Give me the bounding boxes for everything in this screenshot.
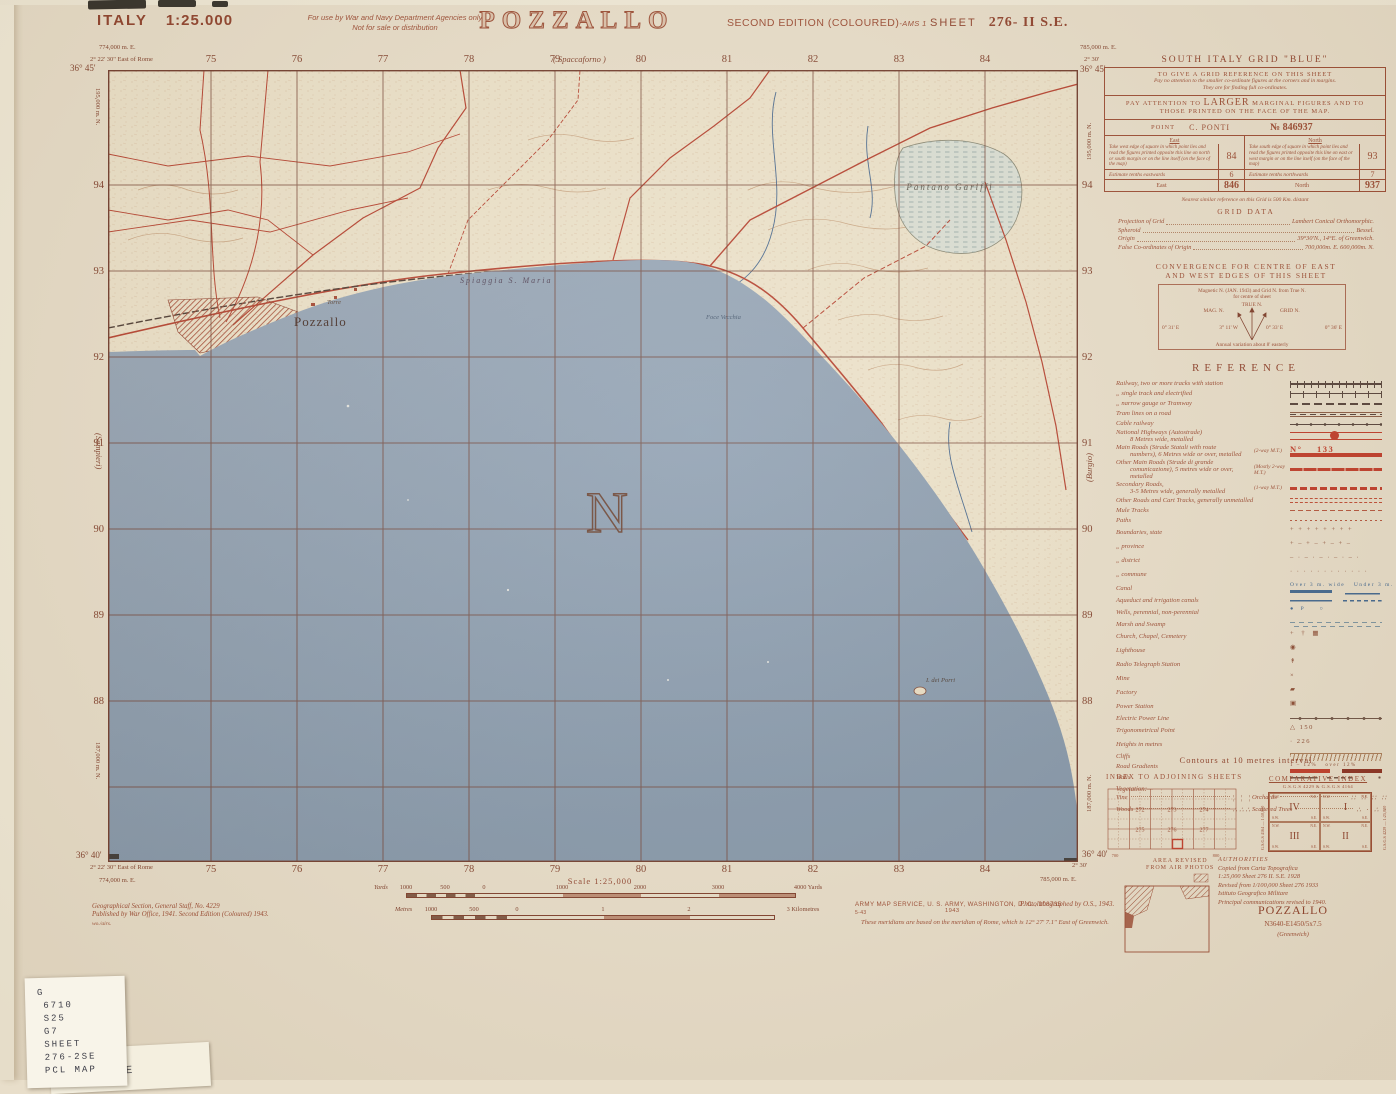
legend-label: Paths bbox=[1116, 517, 1131, 524]
legend-row: Mine × bbox=[1116, 672, 1388, 686]
corner-easting-tl: 774,000 m. E. bbox=[99, 44, 136, 51]
authorities-title: AUTHORITIES bbox=[1218, 856, 1388, 865]
legend-symbol-text: Over 3 m. wide Under 3 m. bbox=[1290, 582, 1388, 589]
corner-easting-br: 785,000 m. E. bbox=[1040, 876, 1077, 883]
legend-symbol bbox=[1290, 498, 1388, 503]
sheet-title-art: POZZALLO bbox=[447, 2, 707, 38]
legend-symbol-text: · 226 bbox=[1290, 738, 1388, 745]
legend-label: Mine bbox=[1116, 675, 1130, 682]
grid-easting-label: 82 bbox=[770, 54, 856, 65]
legend-label: Main Roads (Strade Statali with route bbox=[1116, 444, 1216, 451]
comparative-side-left: G.S.G.S 4164 — 1:50,000 bbox=[1260, 806, 1265, 850]
scan-artifact bbox=[158, 0, 196, 7]
legend-symbol bbox=[1290, 715, 1388, 722]
north-instruction: Take south edge of square in which point… bbox=[1245, 144, 1359, 169]
legend-note: (Mostly 2-way M.T.) bbox=[1254, 464, 1290, 476]
north-column: North Take south edge of square in which… bbox=[1245, 136, 1385, 191]
edition-label: SECOND EDITION (COLOURED) bbox=[727, 17, 899, 29]
legend-symbol bbox=[1290, 517, 1388, 524]
grid-ref-larger: LARGER bbox=[1204, 97, 1250, 108]
legend-row: Railway, two or more tracks with station bbox=[1116, 379, 1388, 389]
north-letter: N bbox=[586, 480, 628, 545]
quadrant-ne-label: N.E. bbox=[1310, 824, 1317, 828]
map-face: Pozzallo Torre Spiaggia S. Maria Pantano… bbox=[108, 70, 1078, 862]
metres-tick: 0 bbox=[515, 906, 518, 913]
legend-row: „ narrow gauge or Tramway bbox=[1116, 399, 1388, 409]
quadrant-nw-label: N.W. bbox=[1323, 795, 1330, 799]
legend-symbol-text: + – + – + – + – bbox=[1290, 540, 1388, 547]
legend-row: Mule Tracks bbox=[1116, 506, 1388, 516]
legend-row: Cable railway bbox=[1116, 419, 1388, 429]
legend-symbol: – · – · – · – · – · bbox=[1290, 554, 1388, 568]
east-total-value: 846 bbox=[1218, 179, 1244, 191]
adjoining-sheet-number: 275 bbox=[1136, 828, 1145, 834]
legend-symbol: · 226 bbox=[1290, 738, 1388, 752]
leader-dots bbox=[1143, 227, 1355, 234]
north-estimate-label: Estimate tenths northwards bbox=[1245, 169, 1359, 179]
grid-easting-label: 83 bbox=[856, 864, 942, 875]
annual-variation-note: Annual variation about 8' easterly bbox=[1216, 342, 1289, 348]
library-label: G6710S25G7SHEET276-2SEPCL MAP bbox=[25, 976, 128, 1089]
legend-row: Other Roads and Cart Tracks, generally u… bbox=[1116, 496, 1388, 506]
legend-label: Marsh and Swamp bbox=[1116, 621, 1165, 628]
adjoining-sheet-number: 272 bbox=[1136, 808, 1145, 814]
grid-easting-label: 81 bbox=[684, 54, 770, 65]
publisher-line1: Geographical Section, General Staff, No.… bbox=[92, 903, 269, 911]
legend-row: „ province + – + – + – + – bbox=[1116, 540, 1388, 554]
yards-tick: 1000 bbox=[400, 884, 413, 891]
legend-label: „ province bbox=[1116, 543, 1144, 550]
photolith-note: Photolithographed by O.S., 1943. bbox=[1020, 900, 1114, 908]
adjoining-sheet-number: 277 bbox=[1200, 828, 1209, 834]
convergence-subtitle2: for centre of sheet bbox=[1233, 293, 1271, 300]
legend-symbol-glyph bbox=[1290, 401, 1382, 408]
grid-data-title: GRID DATA bbox=[1118, 207, 1374, 216]
country-label: ITALY bbox=[97, 12, 148, 29]
edition-note: SECOND EDITION (COLOURED)-AMS 1 bbox=[727, 17, 927, 29]
grid-northing-label: 92 bbox=[1082, 314, 1104, 400]
convergence-subtitle: Magnetic N. (JAN. 1943) and Grid N. from… bbox=[1198, 287, 1306, 294]
leader-dots bbox=[1166, 218, 1290, 225]
grid-easting-label: 83 bbox=[856, 54, 942, 65]
scan-edge-left bbox=[0, 0, 14, 1080]
adjoining-sheet-number: 273 bbox=[1168, 808, 1177, 814]
sheet-number-block: SHEET 276- II S.E. bbox=[930, 13, 1068, 31]
grid-northing-label: 90 bbox=[82, 486, 104, 572]
quadrant-numeral: I bbox=[1344, 802, 1347, 813]
adjoining-sheets-title: INDEX TO ADJOINING SHEETS bbox=[1106, 773, 1256, 781]
sheet-reference-code: N3640-E1450/5x7.5 bbox=[1208, 920, 1378, 928]
legend-symbol: + + + + + + + + bbox=[1290, 526, 1388, 540]
legend-symbol-glyph bbox=[1290, 453, 1382, 457]
legend-symbol: × bbox=[1290, 672, 1388, 686]
legend-symbol-text: ↟ bbox=[1290, 658, 1388, 665]
legend-symbol-text: – · – · – · – · – · bbox=[1290, 554, 1388, 561]
legend-label: Railway, two or more tracks with station bbox=[1116, 380, 1223, 387]
grid-data-row: Spheroid Bessel. bbox=[1118, 227, 1374, 236]
legend-label: Electric Power Line bbox=[1116, 715, 1169, 722]
adjoining-tick: 700 bbox=[1112, 853, 1120, 858]
authority-line: 1:25,000 Sheet 276 II. S.E. 1928 bbox=[1218, 873, 1388, 882]
leader-dots bbox=[1137, 235, 1296, 242]
legend-row: „ district – · – · – · – · – · bbox=[1116, 554, 1388, 568]
grid-ref-note1: Pay no attention to the smaller co-ordin… bbox=[1111, 78, 1379, 85]
comparative-quadrant: N.W. N.E. III S.W. S.E. bbox=[1269, 822, 1320, 851]
metres-scale-bar bbox=[431, 915, 775, 920]
authority-line: Istituto Geografico Militare bbox=[1218, 890, 1388, 899]
grid-northing-label: 88 bbox=[1082, 658, 1104, 744]
legend-label: Heights in metres bbox=[1116, 741, 1162, 748]
convergence-east-value: 0° 36' E bbox=[1325, 324, 1343, 331]
legend-symbol: △ 150 bbox=[1290, 724, 1388, 738]
grid-easting-label: 77 bbox=[340, 54, 426, 65]
legend-symbol bbox=[1290, 391, 1388, 398]
convergence-diagram: Magnetic N. (JAN. 1943) and Grid N. from… bbox=[1158, 284, 1346, 350]
grid-data-label: Origin bbox=[1118, 235, 1135, 244]
yards-tick: 0 bbox=[482, 884, 485, 891]
kilometres-end-label: 3 Kilometres bbox=[787, 906, 820, 913]
marsh-label: Pantano Gariffi bbox=[905, 182, 993, 192]
legend-row: Factory ▰ bbox=[1116, 686, 1388, 700]
legend-row: Boundaries, state + + + + + + + + bbox=[1116, 526, 1388, 540]
east-instruction: Take west edge of square in which point … bbox=[1105, 144, 1218, 169]
grid-easting-label: 78 bbox=[426, 864, 512, 875]
legend-label: „ district bbox=[1116, 557, 1140, 564]
legend-symbol bbox=[1290, 507, 1388, 514]
sheet-word: SHEET bbox=[930, 17, 977, 29]
grid-easting-label: 81 bbox=[684, 864, 770, 875]
east-column: East Take west edge of square in which p… bbox=[1105, 136, 1245, 191]
grid-ref-attention1: PAY ATTENTION TO bbox=[1126, 100, 1201, 107]
legend-row: Canal Over 3 m. wide Under 3 m. bbox=[1116, 582, 1388, 596]
legend-symbol-glyph bbox=[1290, 507, 1382, 514]
east-estimate-label: Estimate tenths eastwards bbox=[1105, 169, 1218, 179]
legend-symbol-glyph bbox=[1290, 597, 1382, 604]
corner-northing-br: 187,000 m. N. bbox=[1086, 775, 1093, 812]
north-value: 93 bbox=[1359, 144, 1385, 169]
grid-data-block: GRID DATA Projection of Grid Lambert Con… bbox=[1118, 207, 1374, 252]
grid-easting-label: 79 bbox=[512, 864, 598, 875]
north-total-label: North bbox=[1245, 179, 1359, 191]
corner-lon-bl: 2° 22' 30" East of Rome bbox=[90, 864, 153, 871]
corner-lat-br: 36° 40' bbox=[1082, 849, 1107, 859]
legend-symbol-glyph bbox=[1290, 432, 1382, 440]
east-estimate-value: 6 bbox=[1218, 169, 1244, 179]
legend-symbol-glyph bbox=[1290, 381, 1382, 388]
magnetic-declination-value: 3° 11' W bbox=[1219, 324, 1239, 331]
quadrant-numeral: IV bbox=[1289, 802, 1300, 813]
legend-label: Factory bbox=[1116, 689, 1137, 696]
metres-bar-labels: Metres 1000 500 0 1 2 3 Kilometres bbox=[431, 906, 831, 914]
metres-unit: Metres bbox=[395, 906, 412, 913]
legend-symbol-text: ▣ bbox=[1290, 700, 1388, 707]
legend-row: Other Main Roads (Strade di grande comun… bbox=[1116, 459, 1388, 481]
scan-artifact bbox=[212, 1, 228, 7]
legend-symbol-glyph bbox=[1290, 468, 1382, 471]
grid-ref-box: TO GIVE A GRID REFERENCE ON THIS SHEET P… bbox=[1104, 67, 1386, 192]
yards-tick: 3000 bbox=[712, 884, 725, 891]
legend-symbol-glyph bbox=[1290, 621, 1382, 628]
east-total-label: East bbox=[1105, 179, 1218, 191]
legend-row: Paths bbox=[1116, 516, 1388, 526]
corner-easting-tr: 785,000 m. E. bbox=[1080, 44, 1117, 51]
legend-symbol-text: N° 133 bbox=[1290, 446, 1388, 453]
area-revised-diagram bbox=[1124, 872, 1212, 954]
publisher-note: Geographical Section, General Staff, No.… bbox=[92, 903, 269, 928]
legend-label: Mule Tracks bbox=[1116, 507, 1149, 514]
grid-easting-label: 75 bbox=[168, 864, 254, 875]
ams-year: 1943 bbox=[945, 908, 1062, 914]
corner-lat-tl: 36° 45' bbox=[70, 63, 95, 73]
current-sheet-highlight bbox=[1173, 840, 1183, 849]
legend-symbol-glyph bbox=[1290, 421, 1382, 428]
legend-label: Trigonometrical Point bbox=[1116, 727, 1175, 734]
corner-easting-bl: 774,000 m. E. bbox=[99, 877, 136, 884]
legend-label: Boundaries, state bbox=[1116, 529, 1162, 536]
quadrant-se-label: S.E. bbox=[1311, 816, 1317, 820]
quadrant-sw-label: S.W. bbox=[1272, 816, 1279, 820]
north-estimate-value: 7 bbox=[1359, 169, 1385, 179]
grid-northing-label: 88 bbox=[82, 658, 104, 744]
legend-symbol bbox=[1290, 381, 1388, 388]
adjoining-sheet-number: 276 bbox=[1168, 828, 1177, 834]
comparative-quadrant: N.W. N.E. I S.W. S.E. bbox=[1320, 793, 1371, 822]
legend-symbol-glyph bbox=[1290, 715, 1382, 722]
legend-symbol: ◉ bbox=[1290, 644, 1388, 658]
quadrant-sw-label: S.W. bbox=[1323, 816, 1330, 820]
legend-label: National Highways (Autostrade) bbox=[1116, 429, 1202, 436]
grid-data-value: Bessel. bbox=[1356, 227, 1374, 236]
contour-interval-note: Contours at 10 metres interval bbox=[1118, 755, 1374, 765]
corner-northing-tl: 195,000 m. N. bbox=[94, 88, 101, 125]
legend-symbol-glyph bbox=[1290, 769, 1382, 773]
island-i-dei-porri bbox=[914, 687, 926, 695]
grid-easting-label: 80 bbox=[598, 864, 684, 875]
legend-symbol bbox=[1290, 468, 1388, 471]
yards-unit: Yards bbox=[374, 884, 388, 891]
legend-symbol bbox=[1290, 487, 1388, 490]
metres-tick: 2 bbox=[687, 906, 690, 913]
grid-eastings-bottom: 75767778798081828384 bbox=[168, 864, 1028, 875]
sheet-number: 276- II S.E. bbox=[989, 15, 1069, 30]
legend-symbol: · · · · · · · · · · · · bbox=[1290, 568, 1388, 582]
legend-label: „ single track and electrified bbox=[1116, 390, 1192, 397]
legend-row: „ single track and electrified bbox=[1116, 389, 1388, 399]
beach-label: Spiaggia S. Maria bbox=[460, 276, 552, 285]
grid-data-value: 39°30'N., 14°E. of Greenwich. bbox=[1297, 235, 1374, 244]
north-header: North bbox=[1245, 136, 1385, 144]
meridian-note: These meridians are based on the meridia… bbox=[850, 919, 1120, 926]
grid-northing-label: 89 bbox=[82, 572, 104, 658]
page-title: POZZALLO bbox=[480, 7, 675, 34]
torre-label: Torre bbox=[327, 299, 341, 306]
legend-row: Secondary Roads, 3-5 Metres wide, genera… bbox=[1116, 481, 1388, 496]
legend-symbol: ↟ bbox=[1290, 658, 1388, 672]
legend-label: Secondary Roads, bbox=[1116, 481, 1164, 488]
grid-ref-attention3: THOSE PRINTED ON THE FACE OF THE MAP. bbox=[1111, 108, 1379, 116]
legend-note: (1-way M.T.) bbox=[1254, 485, 1290, 491]
true-north-label: TRUE N. bbox=[1242, 302, 1263, 308]
legend-symbol: ● P ○ bbox=[1290, 606, 1388, 620]
edition-suffix: -AMS 1 bbox=[899, 19, 926, 28]
grid-easting-label: 76 bbox=[254, 864, 340, 875]
reference-legend: Railway, two or more tracks with station… bbox=[1116, 379, 1388, 814]
quadrant-sw-label: S.W. bbox=[1323, 845, 1330, 849]
legend-label-2: 8 Metres wide, metalled bbox=[1116, 436, 1254, 443]
comparative-index-grid: N.W. N.E. IV S.W. S.E. N.W. N.E. I S.W. … bbox=[1268, 792, 1372, 852]
north-total-value: 937 bbox=[1359, 179, 1385, 191]
greenwich-note: (Greenwich) bbox=[1208, 931, 1378, 938]
yards-tick: 500 bbox=[440, 884, 449, 891]
legend-symbol-text: · · · · · · · · · · · · bbox=[1290, 568, 1388, 575]
legend-symbol: ▰ bbox=[1290, 686, 1388, 700]
corner-lon-tl: 2° 22' 30" East of Rome bbox=[90, 56, 153, 63]
yards-tick: 2000 bbox=[634, 884, 647, 891]
legend-symbol bbox=[1290, 401, 1388, 408]
publisher-line3: wo./airs. bbox=[92, 920, 269, 928]
library-label-line: PCL MAP bbox=[39, 1063, 115, 1078]
quadrant-numeral: III bbox=[1290, 831, 1300, 842]
legend-row: Power Station ▣ bbox=[1116, 700, 1388, 714]
legend-row: Tram lines on a road bbox=[1116, 409, 1388, 419]
comparative-index-subtitle: G.S.G.S 4229 & G.S.G.S 4164 bbox=[1248, 784, 1388, 789]
grid-easting-label: 80 bbox=[598, 54, 684, 65]
legend-symbol-glyph bbox=[1290, 412, 1382, 417]
quadrant-se-label: S.E. bbox=[1311, 845, 1317, 849]
grid-data-value: 700,000m. E. 600,000m. N. bbox=[1305, 244, 1374, 253]
point-reference: № 846937 bbox=[1270, 122, 1313, 133]
river-mouth-label: Foce Vecchia bbox=[705, 314, 741, 321]
grid-easting-label: 84 bbox=[942, 54, 1028, 65]
leader-dots bbox=[1193, 244, 1303, 251]
legend-label: Tram lines on a road bbox=[1116, 410, 1171, 417]
legend-symbol: ▣ bbox=[1290, 700, 1388, 714]
legend-symbol-text: + † ▦ bbox=[1290, 630, 1388, 637]
comparative-quadrant: N.W. N.E. II S.W. S.E. bbox=[1320, 822, 1371, 851]
adjacent-sheet-town-left: (Sampieri) bbox=[94, 433, 104, 469]
legend-symbol-text: × bbox=[1290, 672, 1388, 679]
legend-label-2: comunicazione), 5 metres wide or over, m… bbox=[1116, 466, 1254, 481]
magnetic-north-label: MAG. N. bbox=[1203, 308, 1224, 314]
grid-data-label: Projection of Grid bbox=[1118, 218, 1164, 227]
quadrant-numeral: II bbox=[1342, 831, 1349, 842]
legend-symbol: N° 133 bbox=[1290, 446, 1388, 457]
legend-symbol-text: ◉ bbox=[1290, 644, 1388, 651]
grid-easting-label: 84 bbox=[942, 864, 1028, 875]
quadrant-nw-label: N.W. bbox=[1272, 824, 1279, 828]
grid-northing-label: 94 bbox=[82, 142, 104, 228]
legend-label-2: 3-5 Metres wide, generally metalled bbox=[1116, 488, 1254, 495]
legend-symbol bbox=[1290, 432, 1388, 440]
yards-tick: 1000 bbox=[556, 884, 569, 891]
grid-easting-label: 78 bbox=[426, 54, 512, 65]
legend-row: Aqueduct and irrigation canals bbox=[1116, 596, 1388, 606]
legend-label: Radio Telegraph Station bbox=[1116, 661, 1180, 668]
quadrant-se-label: S.E. bbox=[1362, 816, 1368, 820]
legend-row: „ commune · · · · · · · · · · · · bbox=[1116, 568, 1388, 582]
grid-ref-title: SOUTH ITALY GRID "BLUE" bbox=[1104, 55, 1386, 65]
metres-tick: 500 bbox=[469, 906, 478, 913]
quadrant-nw-label: N.W. bbox=[1323, 824, 1330, 828]
ams-code: 5-43 bbox=[855, 910, 867, 916]
corner-lon-br: 2° 30' bbox=[1072, 862, 1087, 869]
comparative-index-title: COMPARATIVE INDEX bbox=[1248, 775, 1388, 783]
legend-symbol: Over 3 m. wide Under 3 m. bbox=[1290, 582, 1388, 596]
north-arrows bbox=[1238, 308, 1266, 340]
corner-lon-tr: 2° 30' bbox=[1084, 56, 1099, 63]
legend-row: Trigonometrical Point △ 150 bbox=[1116, 724, 1388, 738]
legend-label: Cable railway bbox=[1116, 420, 1154, 427]
legend-row: Lighthouse ◉ bbox=[1116, 644, 1388, 658]
legend-row: Electric Power Line bbox=[1116, 714, 1388, 724]
grid-data-rows: Projection of Grid Lambert Conical Ortho… bbox=[1118, 218, 1374, 252]
corner-northing-bl: 187,000 m. N. bbox=[94, 742, 101, 779]
east-header: East bbox=[1105, 136, 1244, 144]
grid-ref-footnote: Nearest similar reference on this Grid i… bbox=[1104, 197, 1386, 203]
scale-label: 1:25.000 bbox=[166, 12, 233, 29]
legend-row: Marsh and Swamp bbox=[1116, 620, 1388, 630]
authorities-block: AUTHORITIES Copied from Carta Topografic… bbox=[1218, 856, 1388, 908]
adjacent-sheet-town-right: (Burgio) bbox=[1084, 453, 1094, 482]
corner-northing-tr: 195,000 m. N. bbox=[1086, 123, 1093, 160]
sheet-name-footer: POZZALLO bbox=[1208, 903, 1378, 918]
legend-note: (2-way M.T.) bbox=[1254, 448, 1290, 454]
grid-data-row: False Co-ordinates of Origin 700,000m. E… bbox=[1118, 244, 1374, 253]
legend-symbol bbox=[1290, 597, 1388, 604]
legend-row: National Highways (Autostrade) 8 Metres … bbox=[1116, 429, 1388, 444]
legend-symbol: + – + – + – + – bbox=[1290, 540, 1388, 554]
grid-northing-label: 89 bbox=[1082, 572, 1104, 658]
legend-row: Wells, perennial, non-perennial ● P ○ bbox=[1116, 606, 1388, 620]
legend-symbol-glyph bbox=[1290, 589, 1382, 596]
legend-label: Lighthouse bbox=[1116, 647, 1145, 654]
legend-label: Wells, perennial, non-perennial bbox=[1116, 609, 1199, 616]
convergence-title: CONVERGENCE FOR CENTRE OF EAST AND WEST … bbox=[1118, 262, 1374, 280]
marsh-pantano-gariffi bbox=[894, 140, 1021, 253]
quadrant-sw-label: S.W. bbox=[1272, 845, 1279, 849]
metres-tick: 1000 bbox=[425, 906, 438, 913]
legend-symbol bbox=[1290, 421, 1388, 428]
corner-lat-bl: 36° 40' bbox=[76, 850, 101, 860]
grid-northing-label: 92 bbox=[82, 314, 104, 400]
grid-northing-label: 93 bbox=[1082, 228, 1104, 314]
legend-symbol-glyph bbox=[1290, 391, 1382, 398]
grid-data-value: Lambert Conical Orthomorphic. bbox=[1292, 218, 1374, 227]
legend-symbol-text: + + + + + + + + bbox=[1290, 526, 1388, 533]
area-revised-label: AREA REVISED FROM AIR PHOTOS bbox=[1146, 858, 1214, 872]
point-label: POINT bbox=[1151, 124, 1175, 131]
grid-easting-label: 82 bbox=[770, 864, 856, 875]
country-scale: ITALY1:25.000 bbox=[97, 12, 233, 29]
authority-line: Copied from Carta Topografica bbox=[1218, 865, 1388, 874]
publisher-line2: Published by War Office, 1941. Second Ed… bbox=[92, 911, 269, 919]
grid-easting-label: 77 bbox=[340, 864, 426, 875]
legend-label: Other Main Roads (Strade di grande bbox=[1116, 459, 1213, 466]
legend-row: Church, Chapel, Cemetery + † ▦ bbox=[1116, 630, 1388, 644]
grid-northings-right: 94939291908988 bbox=[1082, 142, 1104, 744]
legend-row: Main Roads (Strade Statali with route nu… bbox=[1116, 444, 1388, 459]
comparative-quadrant: N.W. N.E. IV S.W. S.E. bbox=[1269, 793, 1320, 822]
legend-label: „ narrow gauge or Tramway bbox=[1116, 400, 1192, 407]
quadrant-nw-label: N.W. bbox=[1272, 795, 1279, 799]
quadrant-ne-label: N.E. bbox=[1361, 795, 1368, 799]
legend-label: Other Roads and Cart Tracks, generally u… bbox=[1116, 497, 1253, 504]
legend-label: Canal bbox=[1116, 585, 1132, 592]
legend-label: Aqueduct and irrigation canals bbox=[1116, 597, 1199, 604]
point-name: C. PONTI bbox=[1189, 123, 1230, 132]
legend-symbol-glyph bbox=[1290, 517, 1382, 524]
authority-line: Revised from 1/100,000 Sheet 276 1933 bbox=[1218, 882, 1388, 891]
